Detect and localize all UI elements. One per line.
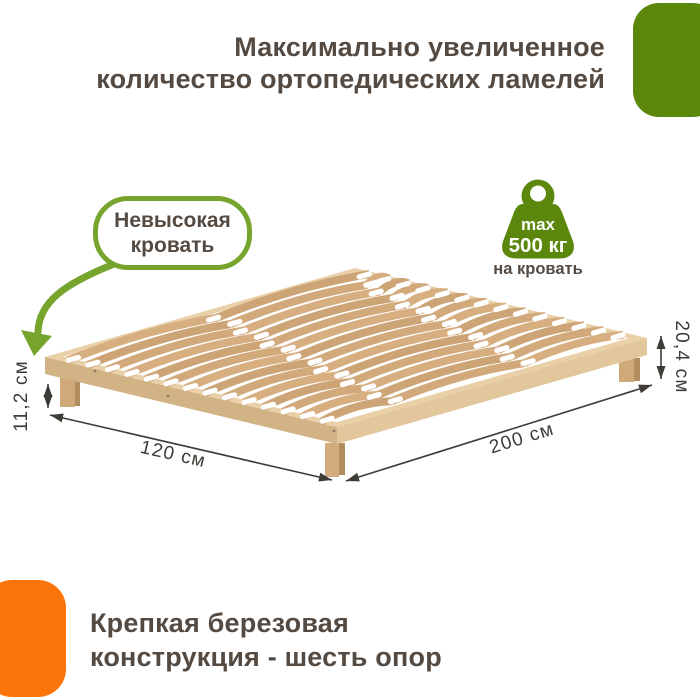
slat-holder-clip	[471, 335, 481, 338]
slat-holder-clip	[283, 347, 293, 350]
slat-holder-clip	[337, 373, 347, 376]
dimension-arrow-head	[44, 395, 53, 408]
slat-holder-clip	[310, 360, 320, 363]
slat-holder-clip	[127, 372, 137, 375]
slat-holder-clip	[554, 321, 564, 324]
bed-frame-illustration	[45, 268, 647, 477]
callout-line-2: кровать	[131, 233, 215, 258]
slat-holder-clip	[594, 330, 604, 333]
slat-holder-clip	[476, 343, 486, 346]
slat-holder-clip	[88, 362, 98, 365]
slat-holder-clip	[502, 356, 512, 359]
bed-illustration-scene: 11,2 см 20,4 см 120 см 200 см max 500 кг…	[0, 0, 700, 700]
slat-holder-clip	[262, 343, 272, 346]
slat-holder-clip	[343, 382, 353, 385]
slat-holder-clip	[535, 316, 545, 319]
dimension-arrow-head	[638, 385, 652, 394]
slat-holder-clip	[515, 311, 525, 314]
slat-holder-clip	[457, 297, 467, 300]
dimension-length: 200 см	[487, 419, 557, 459]
weight-caption: на кровать	[493, 260, 582, 278]
slat-holder-clip	[230, 322, 240, 325]
weight-badge: max 500 кг на кровать	[493, 180, 582, 279]
slat-holder-clip	[289, 356, 299, 359]
slat-holder-clip	[397, 304, 407, 307]
dimension-arrow-head	[657, 336, 666, 349]
slat-holder-clip	[392, 295, 402, 298]
slat-holder-clip	[283, 409, 293, 412]
slat-holder-clip	[398, 283, 408, 286]
slat-holder-clip	[186, 386, 196, 389]
slat-holder-clip	[147, 376, 157, 379]
slat-holder-clip	[523, 361, 533, 364]
slat-holder-clip	[424, 317, 434, 320]
slat-holder-clip	[322, 418, 332, 421]
slat-holder-clip	[359, 274, 369, 277]
slat-holder-clip	[450, 330, 460, 333]
slat-holder-clip	[369, 395, 379, 398]
slat-holder-clip	[476, 302, 486, 305]
slat-holder-clip	[444, 322, 454, 325]
slat-holder-clip	[235, 330, 245, 333]
slat-holder-clip	[418, 288, 428, 291]
slat-holder-clip	[225, 395, 235, 398]
dimension-total-height: 20,4 см	[671, 320, 692, 393]
slat-holder-clip	[364, 386, 374, 389]
slat-holder-clip	[390, 399, 400, 402]
slat-holder-clip	[209, 317, 219, 320]
slat-holder-clip	[108, 367, 118, 370]
slat-holder-clip	[496, 307, 506, 310]
slat-holder-clip	[303, 414, 313, 417]
weight-value: 500 кг	[509, 234, 568, 257]
slat-holder-clip	[497, 348, 507, 351]
footer-line-1: Крепкая березовая	[90, 606, 442, 640]
slat-holder-clip	[316, 369, 326, 372]
slat-holder-clip	[574, 326, 584, 329]
slat-holder-clip	[366, 282, 376, 285]
slat-holder-clip	[371, 291, 381, 294]
footer-line-2: конструкция - шесть опор	[90, 640, 442, 674]
weight-max-label: max	[521, 215, 556, 234]
infographic-canvas: Максимально увеличенное количество ортоп…	[0, 0, 700, 700]
slat-holder-clip	[437, 293, 447, 296]
footer-caption: Крепкая березовая конструкция - шесть оп…	[90, 606, 442, 674]
slat-holder-clip	[257, 334, 267, 337]
callout-line-1: Невысокая	[114, 208, 231, 233]
slat-holder-clip	[264, 404, 274, 407]
callout-bubble: Невысокая кровать	[93, 196, 252, 270]
slat-holder-clip	[244, 400, 254, 403]
dimension-arrow-head	[346, 473, 360, 482]
slat-holder-clip	[68, 358, 78, 361]
slat-holder-clip	[166, 381, 176, 384]
slat-holder-clip	[379, 279, 389, 282]
slat-holder-clip	[205, 390, 215, 393]
dimension-arrow-head	[50, 414, 64, 423]
dimension-arrow-head	[657, 366, 666, 379]
slat-holder-clip	[418, 309, 428, 312]
dimension-width: 120 см	[138, 437, 208, 472]
slat-holder-clip	[613, 335, 623, 338]
dimension-under-bed-height: 11,2 см	[11, 360, 32, 432]
